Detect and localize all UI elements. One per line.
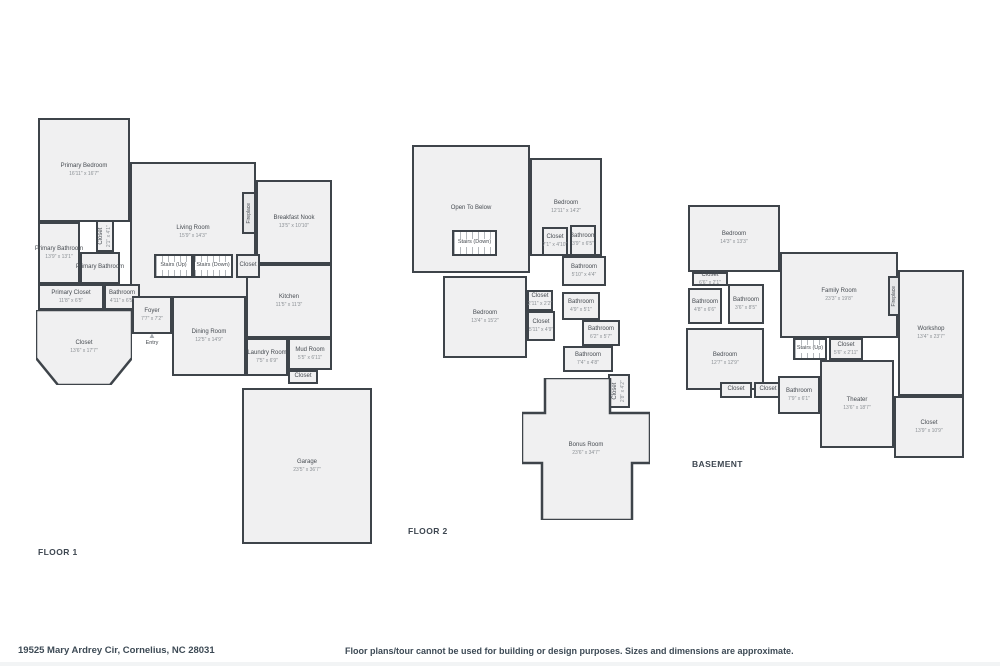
room-name: Kitchen	[276, 294, 303, 302]
room-label: Primary Bedroom16'11" x 16'7"	[61, 163, 108, 177]
room-label: Bedroom12'11" x 14'2"	[551, 200, 581, 214]
room-label: Bathroom4'8" x 6'6"	[692, 299, 718, 313]
room-name: Laundry Room	[247, 350, 286, 358]
room-name: Workshop	[917, 326, 944, 334]
room-dimensions: 2'1" x 4'1"	[106, 225, 113, 247]
room-name: Stairs (Down)	[457, 239, 492, 246]
primary-bathroom: Primary Bathroom	[80, 252, 120, 284]
room-dimensions: 11'5" x 11'3"	[276, 302, 303, 309]
workshop: Workshop13'4" x 23'7"	[898, 270, 964, 396]
room-label: Bathroom3'9" x 6'5"	[570, 233, 596, 247]
room-label: Stairs (Down)	[195, 262, 230, 269]
room-name: Closet	[529, 319, 553, 327]
bonus-room: Bonus Room23'6" x 34'7"	[522, 378, 650, 520]
closet: Closet5'11" x 4'9"	[527, 311, 555, 341]
room-label: Closet2'11" x 2'2"	[528, 293, 552, 307]
room-name: Bathroom	[692, 299, 718, 307]
room-name: Bathroom	[733, 297, 759, 305]
room-label: Closet13'9" x 10'9"	[915, 420, 942, 434]
room-name: Closet	[727, 386, 744, 394]
room-name: Closet	[834, 342, 858, 350]
bedroom: Bedroom14'3" x 13'3"	[688, 205, 780, 272]
room-name: Garage	[293, 459, 320, 467]
room-dimensions: 13'6" x 18'7"	[843, 405, 870, 412]
room-dimensions: 2'11" x 2'2"	[528, 301, 552, 308]
room-name: Primary Bedroom	[61, 163, 108, 171]
room-name: Fireplace	[246, 203, 253, 224]
room-label: Bedroom12'7" x 12'9"	[711, 352, 738, 366]
room-label: Foyer7'7" x 7'2"	[141, 308, 163, 322]
floor-title-floor-2: FLOOR 2	[408, 526, 448, 536]
room-name: Bathroom	[570, 233, 596, 241]
room-name: Closet	[294, 373, 311, 381]
room-name: Stairs (Up)	[796, 345, 824, 352]
closet: Closet13'9" x 10'9"	[894, 396, 964, 458]
room-label: Kitchen11'5" x 11'3"	[276, 294, 303, 308]
closet: Closet	[720, 382, 752, 398]
room-dimensions: 3'9" x 6'5"	[570, 241, 596, 248]
floor-plans-layer: Primary Bedroom16'11" x 16'7"Living Room…	[0, 0, 1000, 666]
living-room: Living Room15'9" x 14'3"	[130, 162, 256, 302]
room-name: Closet	[699, 272, 721, 280]
room-name: Bathroom	[786, 388, 812, 396]
footer-divider	[0, 662, 1000, 666]
room-dimensions: 7'1" x 4'10"	[543, 242, 568, 249]
room-label: Family Room23'3" x 19'8"	[821, 288, 856, 302]
room-dimensions: 4'9" x 5'1"	[568, 307, 594, 314]
room-label: Stairs (Down)	[457, 239, 492, 246]
room-dimensions: 23'5" x 36'7"	[293, 467, 320, 474]
room-name: Bedroom	[720, 231, 747, 239]
closet: Closet	[236, 254, 260, 278]
room-dimensions: 7'4" x 4'8"	[575, 360, 601, 367]
dining-room: Dining Room12'5" x 14'9"	[172, 296, 246, 376]
floor-title-basement: BASEMENT	[692, 459, 743, 469]
property-address: 19525 Mary Ardrey Cir, Cornelius, NC 280…	[18, 645, 215, 656]
foyer: Foyer7'7" x 7'2"	[132, 296, 172, 334]
room-label: Primary Bathroom	[76, 264, 124, 272]
room-dimensions: 12'5" x 14'9"	[192, 337, 227, 344]
room-name: Bedroom	[471, 310, 498, 318]
primary-bedroom: Primary Bedroom16'11" x 16'7"	[38, 118, 130, 222]
room-name: Closet	[239, 262, 256, 270]
room-name: Primary Bathroom	[76, 264, 124, 272]
room-label: Bathroom4'9" x 5'1"	[568, 299, 594, 313]
room-dimensions: 13'9" x 13'1"	[35, 254, 83, 261]
closet: Closet13'6" x 17'7"	[36, 310, 132, 385]
room-label: Closet5'11" x 4'9"	[529, 319, 553, 333]
room-label: Bathroom3'6" x 8'5"	[733, 297, 759, 311]
room-name: Stairs (Down)	[195, 262, 230, 269]
room-label: Bathroom7'9" x 6'1"	[786, 388, 812, 402]
room-name: Bathroom	[588, 326, 614, 334]
room-label: Bedroom14'3" x 13'3"	[720, 231, 747, 245]
floor-title-floor-1: FLOOR 1	[38, 547, 78, 557]
room-name: Breakfast Nook	[273, 215, 314, 223]
stairs: Stairs (Up)	[793, 338, 827, 360]
room-name: Bathroom	[568, 299, 594, 307]
room-label: Theater13'6" x 18'7"	[843, 397, 870, 411]
room-label: Primary Closet11'8" x 6'5"	[51, 290, 90, 304]
room-dimensions: 6'6" x 2'1"	[699, 280, 721, 287]
room-dimensions: 15'9" x 14'3"	[176, 233, 209, 240]
breakfast-nook: Breakfast Nook13'5" x 10'10"	[256, 180, 332, 264]
room-label: Bathroom7'4" x 4'8"	[575, 352, 601, 366]
room-label: Dining Room12'5" x 14'9"	[192, 329, 227, 343]
bathroom: Bathroom7'9" x 6'1"	[778, 376, 820, 414]
room-name: Theater	[843, 397, 870, 405]
bathroom: Bathroom3'9" x 6'5"	[570, 225, 596, 256]
room-label: Stairs (Up)	[796, 345, 824, 352]
room-label: Closet6'6" x 2'1"	[699, 272, 721, 286]
room-name: Bathroom	[575, 352, 601, 360]
disclaimer-text: Floor plans/tour cannot be used for buil…	[345, 646, 794, 656]
room-name: Closet	[528, 293, 552, 301]
room-label: Fireplace	[246, 203, 253, 224]
room-label: Bathroom5'10" x 4'4"	[571, 264, 597, 278]
room-dimensions: 14'3" x 13'3"	[720, 239, 747, 246]
room-dimensions: 13'9" x 10'9"	[915, 428, 942, 435]
room-dimensions: 7'7" x 7'2"	[141, 316, 163, 323]
stairs: Stairs (Down)	[452, 230, 497, 256]
closet: Closet6'6" x 2'1"	[692, 272, 728, 286]
room-label: Mud Room5'5" x 6'11"	[295, 347, 324, 361]
room-dimensions: 5'5" x 6'11"	[295, 355, 324, 362]
room-dimensions: 5'6" x 2'11"	[834, 350, 858, 357]
garage: Garage23'5" x 36'7"	[242, 388, 372, 544]
room-name: Family Room	[821, 288, 856, 296]
room-label: Closet	[239, 262, 256, 270]
room-label: Closet	[759, 386, 776, 394]
closet: Closet2'1" x 4'1"	[96, 220, 114, 252]
room-dimensions: 7'5" x 6'9"	[247, 358, 286, 365]
bedroom: Bedroom13'4" x 15'2"	[443, 276, 527, 358]
stairs: Stairs (Down)	[193, 254, 233, 278]
room-label: Bathroom6'2" x 5'7"	[588, 326, 614, 340]
room-name: Primary Bathroom	[35, 246, 83, 254]
room-dimensions: 5'11" x 4'9"	[529, 327, 553, 334]
closet: Closet5'6" x 2'11"	[829, 338, 863, 360]
theater: Theater13'6" x 18'7"	[820, 360, 894, 448]
room-label: Open To Below	[451, 205, 492, 213]
room-name: Mud Room	[295, 347, 324, 355]
room-name: Foyer	[141, 308, 163, 316]
room-name: Closet	[98, 225, 106, 247]
room-dimensions: 3'6" x 8'5"	[733, 305, 759, 312]
entry: ▲Entry	[138, 330, 166, 350]
room-label: Entry	[146, 340, 159, 347]
room-name: Bedroom	[711, 352, 738, 360]
primary-bathroom: Primary Bathroom13'9" x 13'1"	[38, 222, 80, 284]
room-label: Laundry Room7'5" x 6'9"	[247, 350, 286, 364]
closet: Closet	[288, 370, 318, 384]
laundry-room: Laundry Room7'5" x 6'9"	[246, 338, 288, 376]
primary-closet: Primary Closet11'8" x 6'5"	[38, 284, 104, 310]
entry-marker-icon: ▲	[148, 332, 156, 340]
room-label: Workshop13'4" x 23'7"	[917, 326, 944, 340]
room-label: Fireplace	[891, 286, 898, 307]
closet: Closet7'1" x 4'10"	[542, 227, 568, 256]
mud-room: Mud Room5'5" x 6'11"	[288, 338, 332, 370]
room-label: Garage23'5" x 36'7"	[293, 459, 320, 473]
room-label: Closet5'6" x 2'11"	[834, 342, 858, 356]
bathroom: Bathroom4'9" x 5'1"	[562, 292, 600, 320]
family-room: Family Room23'3" x 19'8"	[780, 252, 898, 338]
room-outline	[522, 378, 650, 520]
room-dimensions: 11'8" x 6'5"	[51, 298, 90, 305]
room-dimensions: 12'7" x 12'9"	[711, 360, 738, 367]
bathroom: Bathroom6'2" x 5'7"	[582, 320, 620, 346]
room-name: Bathroom	[571, 264, 597, 272]
room-dimensions: 7'9" x 6'1"	[786, 396, 812, 403]
room-name: Fireplace	[891, 286, 898, 307]
bathroom: Bathroom4'8" x 6'6"	[688, 288, 722, 324]
closet: Closet2'11" x 2'2"	[527, 290, 553, 311]
room-dimensions: 23'3" x 19'8"	[821, 296, 856, 303]
room-name: Bedroom	[551, 200, 581, 208]
room-outline	[36, 310, 132, 385]
room-dimensions: 5'10" x 4'4"	[571, 272, 597, 279]
room-dimensions: 13'4" x 23'7"	[917, 334, 944, 341]
room-name: Stairs (Up)	[159, 262, 187, 269]
room-dimensions: 16'11" x 16'7"	[61, 171, 108, 178]
fireplace: Fireplace	[242, 192, 256, 234]
room-label: Closet	[294, 373, 311, 381]
room-label: Closet7'1" x 4'10"	[543, 234, 568, 248]
bathroom: Bathroom3'6" x 8'5"	[728, 284, 764, 324]
floor-plan-sheet: Primary Bedroom16'11" x 16'7"Living Room…	[0, 0, 1000, 666]
bathroom: Bathroom5'10" x 4'4"	[562, 256, 606, 286]
room-dimensions: 13'4" x 15'2"	[471, 318, 498, 325]
room-name: Closet	[915, 420, 942, 428]
room-name: Primary Closet	[51, 290, 90, 298]
bedroom: Bedroom12'7" x 12'9"	[686, 328, 764, 390]
room-label: Closet	[727, 386, 744, 394]
room-name: Entry	[146, 340, 159, 347]
room-name: Dining Room	[192, 329, 227, 337]
room-name: Closet	[759, 386, 776, 394]
room-name: Open To Below	[451, 205, 492, 213]
room-label: Closet2'1" x 4'1"	[98, 225, 112, 247]
bathroom: Bathroom7'4" x 4'8"	[563, 346, 613, 372]
room-label: Living Room15'9" x 14'3"	[176, 225, 209, 239]
room-dimensions: 13'5" x 10'10"	[273, 223, 314, 230]
room-label: Stairs (Up)	[159, 262, 187, 269]
room-name: Living Room	[176, 225, 209, 233]
room-label: Bedroom13'4" x 15'2"	[471, 310, 498, 324]
room-name: Closet	[543, 234, 568, 242]
room-label: Breakfast Nook13'5" x 10'10"	[273, 215, 314, 229]
room-label: Primary Bathroom13'9" x 13'1"	[35, 246, 83, 260]
room-dimensions: 12'11" x 14'2"	[551, 208, 581, 215]
stairs: Stairs (Up)	[154, 254, 193, 278]
room-dimensions: 4'8" x 6'6"	[692, 307, 718, 314]
room-dimensions: 6'2" x 5'7"	[588, 334, 614, 341]
